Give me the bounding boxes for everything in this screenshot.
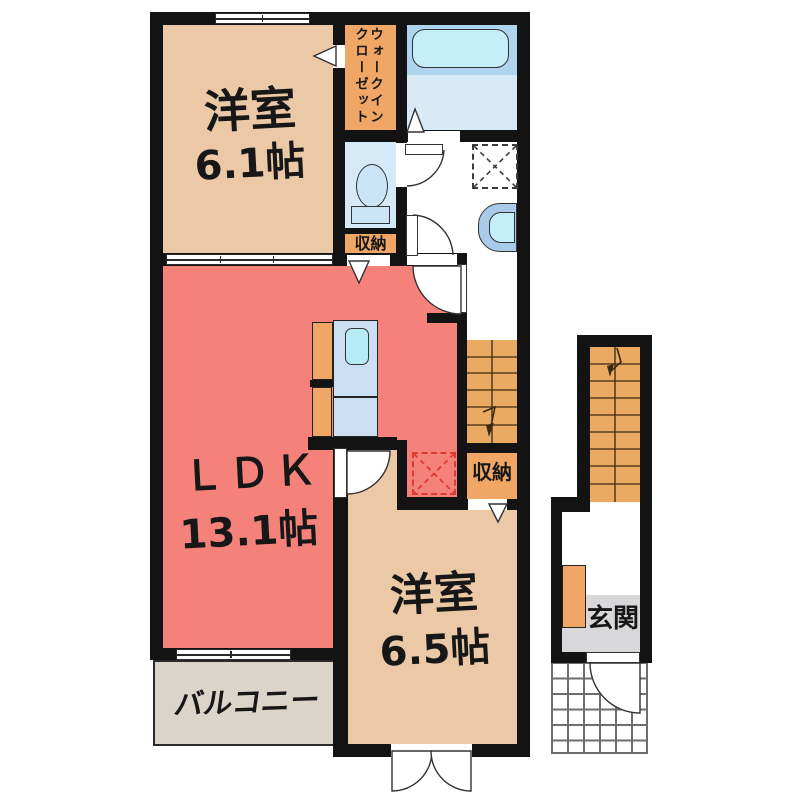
- door-swing-icon: [413, 215, 453, 255]
- door-leaf-entrance: [586, 652, 640, 663]
- window-tick: [230, 651, 232, 657]
- window-ldk-balcony: [176, 649, 291, 660]
- floorplan: 洋室 6.1帖 ＬＤＫ 13.1帖 洋室 6.5帖 ウォークインクローゼット 収…: [0, 0, 800, 800]
- wall: [150, 12, 163, 660]
- doorway-storage-stairs: [468, 499, 507, 510]
- wall: [457, 443, 517, 453]
- wall: [397, 497, 467, 510]
- label-ldk-name: ＬＤＫ: [177, 448, 327, 499]
- toilet-icon: [356, 164, 388, 208]
- doorway-storage-toilet: [347, 255, 390, 266]
- room-bath-lower: [407, 75, 517, 132]
- doorway-bath: [408, 131, 460, 142]
- doorway-wic: [333, 45, 345, 68]
- label-storage-toilet: 収納: [345, 236, 396, 253]
- wall: [577, 335, 590, 502]
- door-swing-icon: [407, 150, 444, 186]
- label-bedroom1-size: 6.1帖: [177, 139, 323, 188]
- shoe-cabinet-icon: [562, 565, 586, 628]
- window-tick: [273, 256, 275, 262]
- window-bedroom1: [215, 13, 310, 24]
- label-storage-stairs: 収納: [467, 462, 517, 483]
- kitchen-cabinet-icon: [312, 387, 332, 437]
- kitchen-wall-stub: [310, 380, 333, 387]
- sliding-door-bedroom1-ldk: [166, 254, 333, 265]
- label-wic-line1: ウォークイン: [367, 27, 383, 126]
- wall: [551, 512, 562, 662]
- doorway-bedroom2-window: [391, 744, 472, 757]
- door-leaf-bedroom2: [334, 448, 347, 498]
- window-tick: [262, 15, 264, 21]
- window-frame: [177, 654, 290, 656]
- washer-space-icon: [472, 144, 518, 189]
- kitchen-sink-icon: [345, 328, 369, 365]
- wall: [517, 12, 530, 757]
- refrigerator-space-icon: [412, 452, 456, 495]
- door-swing-icon: [431, 751, 471, 791]
- kitchen-divider: [334, 396, 377, 398]
- door-leaf-hall: [457, 264, 467, 313]
- label-entrance: 玄関: [584, 606, 642, 633]
- toilet-tank-icon: [351, 206, 390, 224]
- wall: [551, 497, 590, 512]
- door-leaf-washroom: [406, 215, 418, 256]
- label-wic: ウォークインクローゼット: [352, 27, 382, 131]
- label-wic-line2: クローゼット: [352, 27, 368, 126]
- stairs-1f: [590, 347, 640, 502]
- entry-porch-tiles: [551, 662, 648, 754]
- wall: [345, 130, 407, 142]
- wall: [457, 313, 467, 510]
- label-balcony: バルコニー: [159, 684, 334, 720]
- label-bedroom1-name: 洋室: [184, 83, 316, 138]
- bathtub-icon: [412, 29, 509, 68]
- room-ldk-top: [333, 265, 457, 320]
- label-ldk-size: 13.1帖: [172, 507, 326, 557]
- label-bedroom2-size: 6.5帖: [369, 626, 501, 675]
- room-ldk-corridor: [378, 320, 457, 450]
- door-leaf-toilet: [405, 144, 443, 155]
- door-swing-icon: [392, 751, 432, 791]
- window-tick: [220, 256, 222, 262]
- kitchen-cabinet-icon: [312, 322, 333, 380]
- stairs-2f: [467, 340, 517, 443]
- window-frame: [167, 259, 332, 261]
- label-bedroom2-name: 洋室: [377, 569, 491, 621]
- vanity-sink-bowl-icon: [489, 212, 515, 243]
